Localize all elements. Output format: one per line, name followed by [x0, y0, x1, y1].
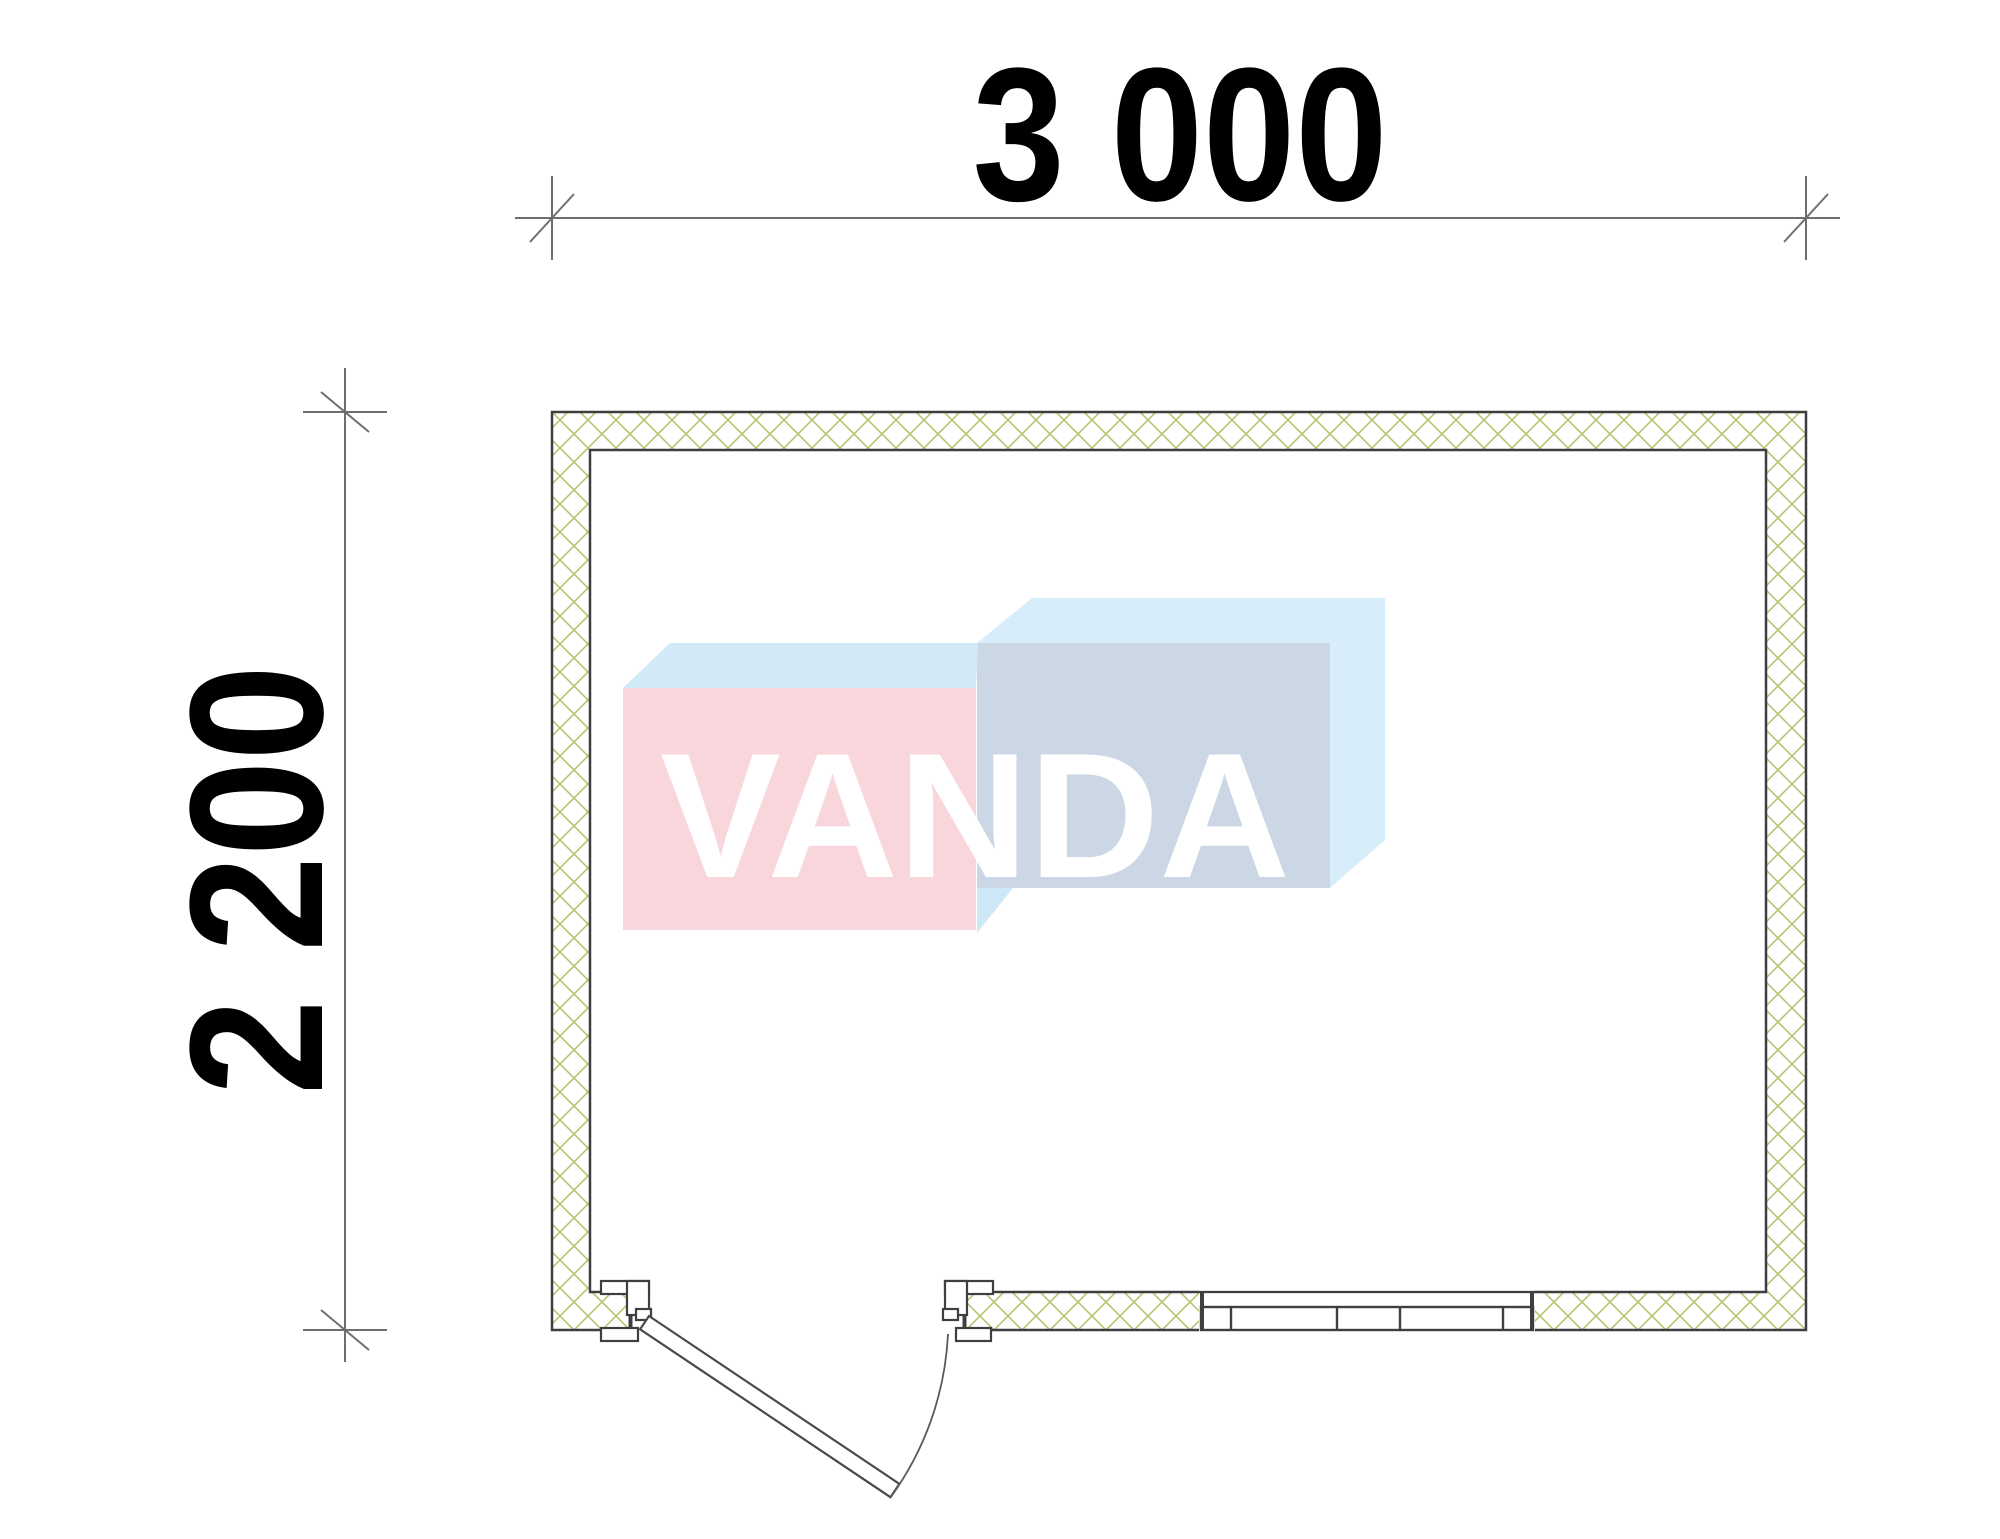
window: [1199, 1289, 1535, 1333]
door-swing-arc: [890, 1334, 948, 1498]
door-frame-left-bottom-flange: [601, 1328, 638, 1341]
door-frame-right-notch: [943, 1309, 958, 1320]
watermark-text: VANDA: [660, 716, 1290, 915]
door: [601, 1281, 993, 1498]
floor-plan-svg: VANDA: [0, 0, 2000, 1539]
left-dimension: 2 200: [151, 368, 387, 1362]
top-dimension: 3 000: [515, 29, 1840, 260]
door-frame-right-bottom-flange: [956, 1328, 991, 1341]
floor-plan-page: VANDA: [0, 0, 2000, 1539]
height-dimension-label: 2 200: [151, 665, 363, 1095]
width-dimension-label: 3 000: [973, 29, 1388, 241]
door-leaf: [640, 1316, 899, 1497]
watermark-logo: VANDA: [623, 598, 1385, 933]
window-frame: [1201, 1307, 1533, 1330]
door-opening: [630, 1289, 965, 1333]
logo-blue-box-top-face: [977, 598, 1385, 643]
logo-pink-box-top-face: [623, 643, 978, 688]
logo-blue-box-right-face: [1330, 598, 1385, 888]
